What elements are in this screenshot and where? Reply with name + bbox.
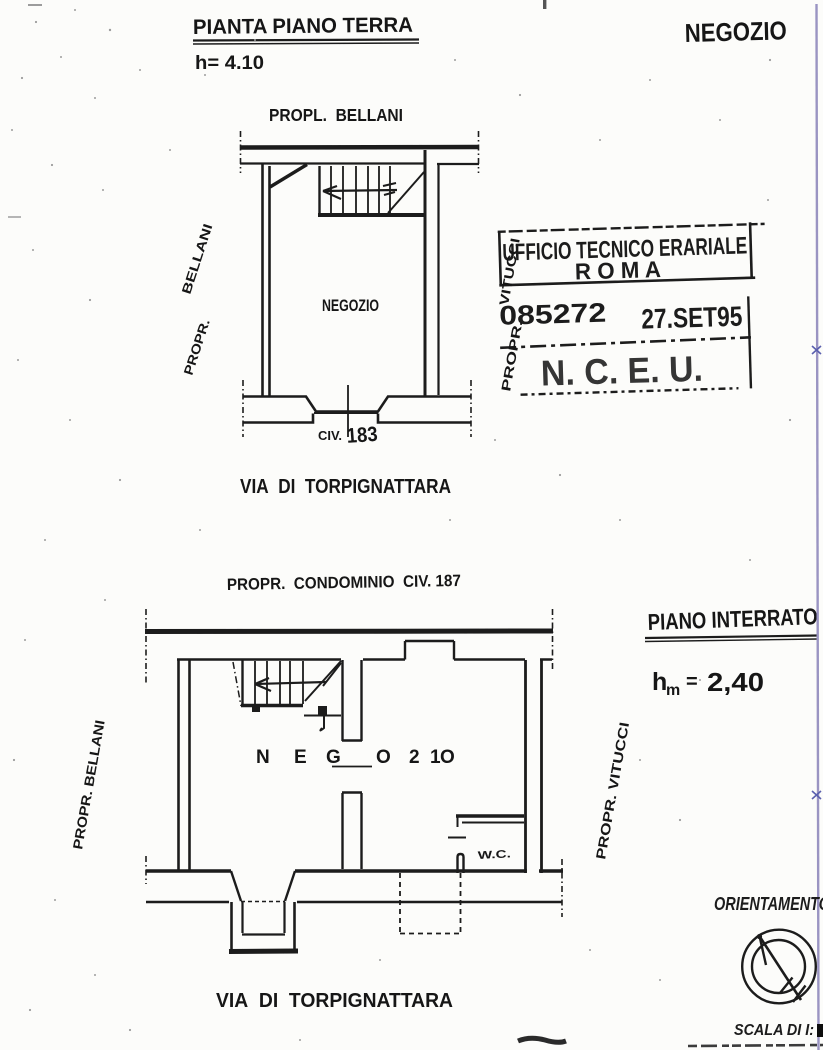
svg-text:NEGOZIO: NEGOZIO (322, 297, 379, 315)
svg-text:G: G (326, 747, 341, 768)
svg-text:PIANO INTERRATO: PIANO INTERRATO (647, 603, 818, 635)
svg-text:VIA DI TORPIGNATTARA: VIA DI TORPIGNATTARA (216, 990, 453, 1012)
svg-text:W.C.: W.C. (478, 848, 512, 862)
svg-text:N: N (256, 747, 270, 768)
svg-text:PROPR.: PROPR. (181, 317, 213, 377)
svg-text:h= 4.10: h= 4.10 (195, 53, 264, 74)
svg-text:PROPR. VITUCCI: PROPR. VITUCCI (593, 721, 632, 860)
svg-text:O: O (376, 747, 391, 768)
svg-text:ORIENTAMENTO: ORIENTAMENTO (714, 894, 823, 914)
svg-text:SCALA DI I:: SCALA DI I: (734, 1022, 814, 1039)
svg-text:m: m (666, 682, 680, 699)
svg-text:h: h (652, 668, 667, 696)
svg-text:PROPR. CONDOMINIO CIV. 187: PROPR. CONDOMINIO CIV. 187 (227, 572, 461, 594)
svg-text:BELLANI: BELLANI (179, 222, 216, 296)
svg-text:PROPL. BELLANI: PROPL. BELLANI (269, 105, 403, 125)
svg-text:VIA DI TORPIGNATTARA: VIA DI TORPIGNATTARA (240, 476, 451, 498)
svg-text:N. C. E. U.: N. C. E. U. (540, 348, 703, 394)
svg-text:2,40: 2,40 (707, 667, 764, 697)
svg-text:=: = (686, 671, 698, 693)
svg-text:PIANTA PIANO TERRA: PIANTA PIANO TERRA (193, 14, 413, 39)
svg-text:CIV.: CIV. (318, 429, 342, 443)
svg-text:27.SET95: 27.SET95 (641, 301, 743, 335)
svg-text:2: 2 (409, 747, 420, 768)
svg-text:NEGOZIO: NEGOZIO (684, 15, 787, 48)
svg-text:R O M A: R O M A (575, 256, 662, 285)
svg-text:183: 183 (346, 423, 379, 448)
svg-text:O: O (440, 747, 455, 768)
svg-text:E: E (294, 747, 307, 768)
svg-text:PROPR. BELLANI: PROPR. BELLANI (70, 719, 108, 851)
